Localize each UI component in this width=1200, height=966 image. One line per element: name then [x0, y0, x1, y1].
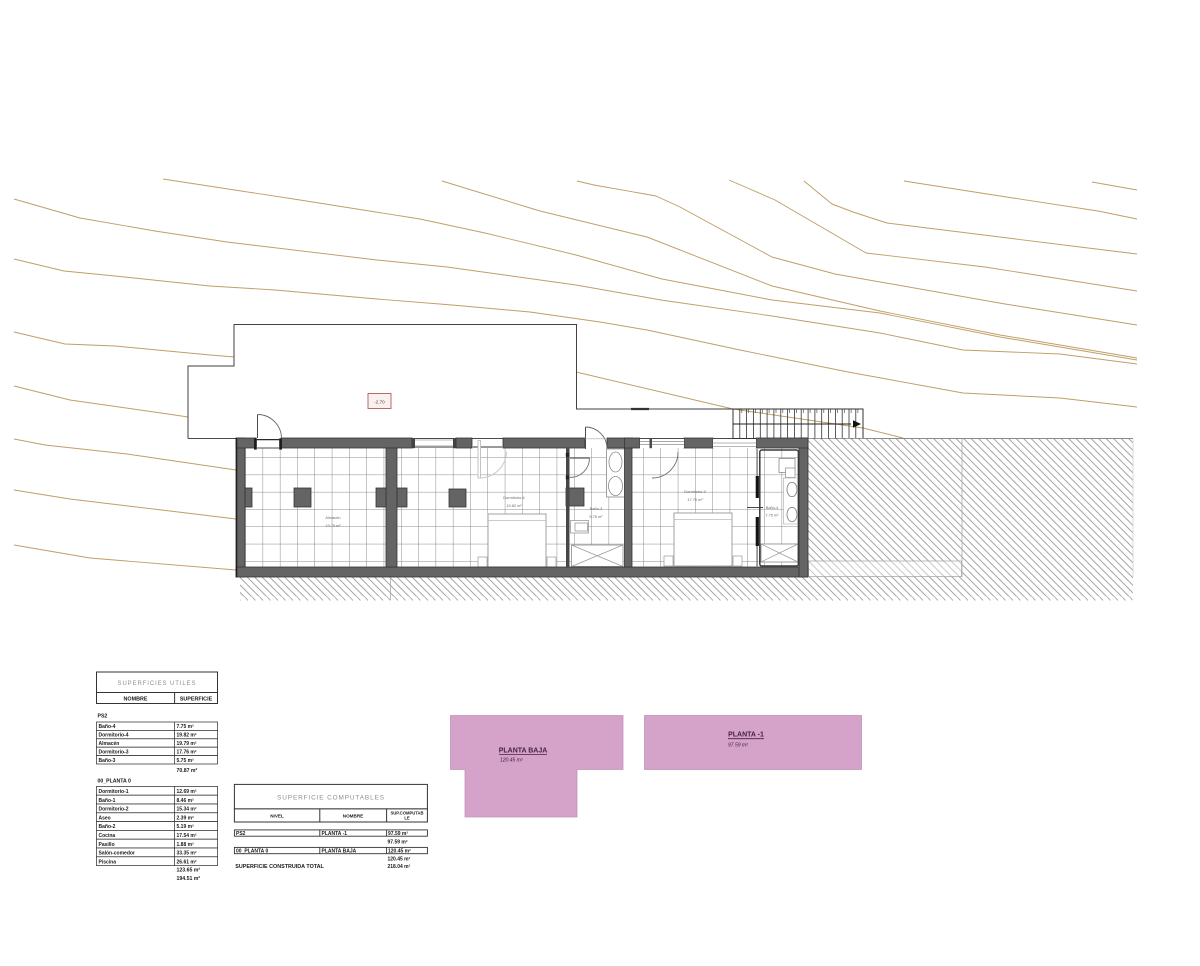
svg-text:LE: LE [404, 816, 410, 821]
svg-text:PS2: PS2 [236, 831, 246, 837]
svg-text:SUPERFICIES UTILES: SUPERFICIES UTILES [118, 681, 197, 687]
svg-text:Baño-1: Baño-1 [99, 798, 116, 804]
svg-text:PS2: PS2 [98, 714, 108, 720]
svg-text:SUPERFICIE CONSTRUIDA TOTAL: SUPERFICIE CONSTRUIDA TOTAL [235, 864, 324, 870]
svg-text:Almacén: Almacén [99, 741, 120, 747]
svg-text:Pasillo: Pasillo [99, 842, 115, 848]
svg-text:2.39 m²: 2.39 m² [177, 815, 195, 821]
svg-text:Dormitorio-2: Dormitorio-2 [99, 807, 129, 813]
svg-text:120.45 m²: 120.45 m² [388, 849, 411, 855]
svg-text:NOMBRE: NOMBRE [343, 814, 363, 819]
svg-text:00_PLANTA 0: 00_PLANTA 0 [236, 849, 268, 855]
svg-text:SUPERFICIE COMPUTABLES: SUPERFICIE COMPUTABLES [277, 795, 385, 802]
svg-text:70.87 m²: 70.87 m² [177, 768, 198, 774]
svg-text:Baño-4: Baño-4 [766, 505, 779, 510]
svg-text:Dormitorio-3: Dormitorio-3 [684, 489, 705, 494]
svg-text:PLANTA BAJA: PLANTA BAJA [499, 748, 548, 755]
svg-text:Aseo: Aseo [99, 815, 111, 821]
svg-text:5.19 m²: 5.19 m² [177, 824, 195, 830]
svg-text:Dormitorio-4: Dormitorio-4 [99, 733, 129, 739]
svg-text:26.61 m²: 26.61 m² [177, 859, 197, 865]
svg-text:5.75 m²: 5.75 m² [589, 514, 603, 519]
svg-text:120.45 m²: 120.45 m² [388, 857, 411, 863]
svg-text:7.75 m²: 7.75 m² [177, 724, 195, 730]
svg-text:17.76 m²: 17.76 m² [687, 497, 703, 502]
svg-text:97.59 m²: 97.59 m² [388, 831, 408, 837]
svg-text:17.76 m²: 17.76 m² [177, 749, 197, 755]
svg-text:17.54 m²: 17.54 m² [177, 833, 197, 839]
svg-text:19.79 m²: 19.79 m² [325, 523, 341, 528]
svg-text:-2.70: -2.70 [374, 400, 385, 405]
svg-text:Salón-comedor: Salón-comedor [99, 851, 135, 857]
svg-text:120.45 m²: 120.45 m² [500, 758, 523, 764]
svg-text:Baño-3: Baño-3 [99, 758, 116, 764]
svg-text:PLANTA -1: PLANTA -1 [322, 831, 348, 837]
svg-text:19.82 m²: 19.82 m² [177, 733, 197, 739]
svg-text:97.59 m²: 97.59 m² [388, 840, 408, 846]
svg-text:19.79 m²: 19.79 m² [177, 741, 197, 747]
svg-text:Baño-3: Baño-3 [590, 506, 603, 511]
svg-text:97.59 m²: 97.59 m² [728, 743, 748, 749]
svg-text:194.51 m²: 194.51 m² [177, 876, 201, 882]
svg-text:Cocina: Cocina [99, 833, 116, 839]
svg-text:218.04 m²: 218.04 m² [388, 864, 411, 870]
svg-text:15.34 m²: 15.34 m² [177, 807, 197, 813]
svg-text:Piscina: Piscina [99, 859, 117, 865]
svg-text:12.69 m²: 12.69 m² [177, 789, 197, 795]
svg-text:NIVEL: NIVEL [270, 814, 284, 819]
svg-text:19.82 m²: 19.82 m² [506, 503, 522, 508]
svg-text:1.88 m²: 1.88 m² [177, 842, 195, 848]
svg-text:8.46 m²: 8.46 m² [177, 798, 195, 804]
svg-text:7.75 m²: 7.75 m² [765, 513, 779, 518]
svg-text:PLANTA BAJA: PLANTA BAJA [322, 849, 357, 855]
svg-text:Dormitorio-3: Dormitorio-3 [99, 749, 129, 755]
svg-text:123.65 m²: 123.65 m² [177, 868, 201, 874]
svg-text:Dormitorio-1: Dormitorio-1 [99, 789, 129, 795]
svg-text:Baño-4: Baño-4 [99, 724, 116, 730]
svg-text:PLANTA -1: PLANTA -1 [728, 732, 764, 739]
svg-text:Baño-2: Baño-2 [99, 824, 116, 830]
svg-text:00_PLANTA 0: 00_PLANTA 0 [98, 779, 132, 785]
svg-text:Almacén: Almacén [325, 515, 340, 520]
svg-text:NOMBRE: NOMBRE [124, 697, 148, 703]
svg-text:33.35 m²: 33.35 m² [177, 851, 197, 857]
svg-text:5.75 m²: 5.75 m² [177, 758, 195, 764]
svg-text:SUPERFICIE: SUPERFICIE [180, 697, 213, 703]
svg-text:Dormitorio-4: Dormitorio-4 [503, 495, 525, 500]
